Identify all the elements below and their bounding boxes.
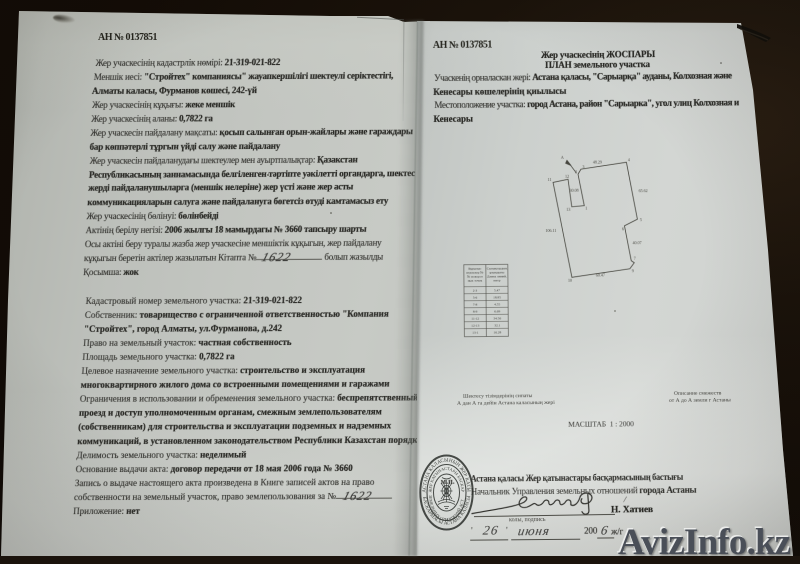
svg-text:106.11: 106.11 [545,228,556,233]
svg-text:65.62: 65.62 [639,188,648,193]
svg-text:11-12: 11-12 [471,317,479,321]
svg-text:60.47: 60.47 [596,272,605,277]
svg-text:5.47: 5.47 [494,288,500,292]
svg-text:4: 4 [628,157,630,162]
svg-text:9: 9 [632,268,634,273]
svg-text:7-8: 7-8 [473,303,478,307]
svg-text:13-1: 13-1 [472,331,479,335]
svg-text:13: 13 [566,207,570,212]
svg-text:8-9: 8-9 [473,310,478,314]
svg-text:метр: метр [493,278,500,282]
svg-text:10: 10 [568,278,572,283]
svg-text:40.07: 40.07 [633,240,642,245]
svg-text:12: 12 [565,174,569,179]
svg-text:1: 1 [585,206,587,211]
svg-text:30.08: 30.08 [570,188,579,193]
svg-text:2-3: 2-3 [473,289,478,293]
svg-text:ных точек: ных точек [468,279,483,283]
svg-text:12-13: 12-13 [471,324,479,328]
svg-text:16.28: 16.28 [494,330,502,334]
svg-text:2: 2 [575,169,577,174]
svg-text:32.1: 32.1 [494,323,500,327]
svg-text:48.29: 48.29 [593,160,602,165]
svg-text:4.55: 4.55 [494,302,500,306]
svg-text:34.56: 34.56 [493,316,501,320]
svg-text:6: 6 [622,226,624,231]
svg-text:7: 7 [634,256,636,261]
svg-text:5-6: 5-6 [473,296,478,300]
svg-text:6.69: 6.69 [494,309,500,313]
svg-text:11: 11 [548,177,552,182]
svg-text:А: А [561,155,564,160]
svg-text:18.85: 18.85 [493,295,501,299]
svg-text:3: 3 [582,164,584,169]
svg-text:5: 5 [640,217,642,222]
